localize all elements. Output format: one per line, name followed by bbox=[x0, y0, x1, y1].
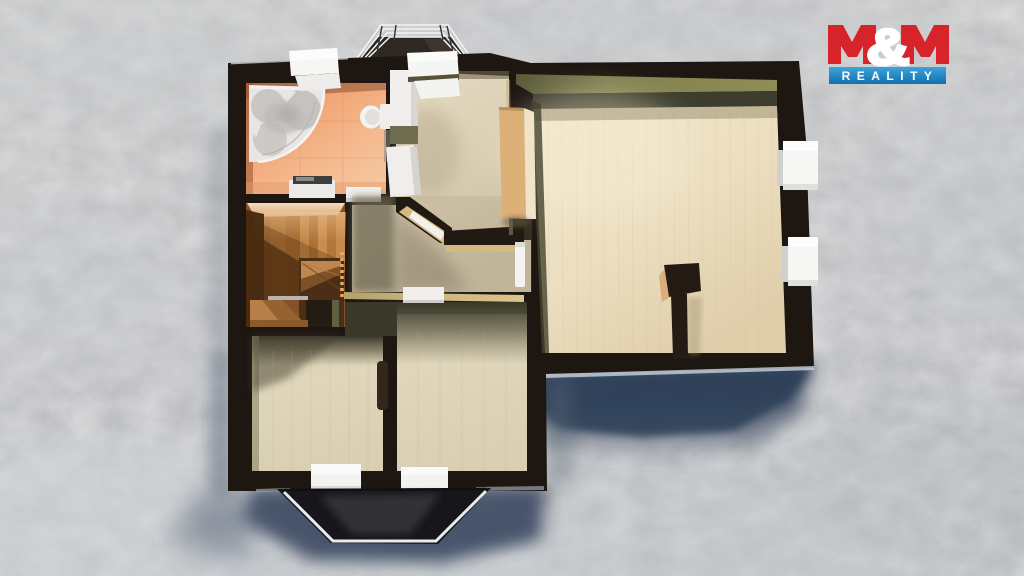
svg-text:&: & bbox=[866, 19, 909, 76]
svg-text:REALITY: REALITY bbox=[842, 69, 939, 83]
